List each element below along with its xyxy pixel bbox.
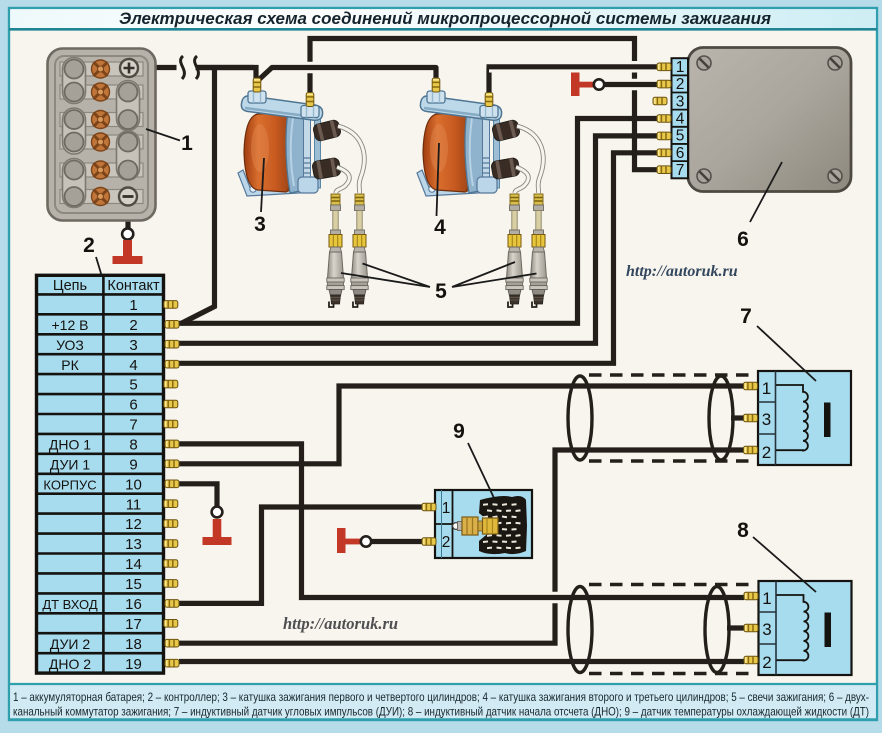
svg-text:9: 9: [453, 420, 465, 443]
svg-text:13: 13: [125, 536, 142, 553]
svg-text:Электрическая схема соединений: Электрическая схема соединений микропроц…: [119, 10, 771, 28]
svg-text:5: 5: [435, 280, 447, 303]
svg-text:РК: РК: [61, 357, 79, 373]
svg-text:11: 11: [126, 496, 142, 513]
svg-text:7: 7: [740, 305, 752, 328]
svg-text:Цепь: Цепь: [53, 278, 87, 294]
svg-text:ДУИ 2: ДУИ 2: [50, 636, 90, 652]
svg-text:2: 2: [442, 534, 451, 551]
svg-text:2: 2: [129, 317, 137, 334]
svg-text:6: 6: [129, 397, 137, 414]
svg-text:3: 3: [254, 213, 266, 236]
svg-text:10: 10: [125, 476, 142, 493]
svg-text:19: 19: [125, 656, 142, 673]
svg-text:Контакт: Контакт: [107, 278, 160, 294]
svg-text:ДНО 2: ДНО 2: [49, 656, 91, 672]
svg-text:4: 4: [676, 111, 685, 128]
svg-text:18: 18: [125, 636, 142, 653]
svg-text:4: 4: [129, 357, 137, 374]
svg-text:1: 1: [442, 500, 451, 517]
svg-text:+12 В: +12 В: [52, 317, 89, 333]
svg-text:16: 16: [125, 596, 142, 613]
svg-text:2: 2: [83, 234, 95, 257]
svg-text:17: 17: [125, 616, 142, 633]
svg-text:6: 6: [737, 228, 749, 251]
svg-text:7: 7: [129, 417, 137, 434]
svg-text:12: 12: [125, 516, 142, 533]
svg-text:3: 3: [676, 93, 685, 110]
svg-text:http://autoruk.ru: http://autoruk.ru: [626, 263, 738, 280]
svg-text:4: 4: [434, 216, 446, 239]
svg-text:15: 15: [125, 576, 142, 593]
svg-text:5: 5: [129, 377, 137, 394]
svg-text:8: 8: [737, 519, 749, 542]
svg-text:9: 9: [129, 456, 137, 473]
svg-text:2: 2: [676, 76, 685, 93]
svg-text:КОРПУС: КОРПУС: [43, 477, 96, 492]
svg-text:1 – аккумуляторная батарея; 2: 1 – аккумуляторная батарея; 2 – контролл…: [13, 690, 869, 704]
svg-text:ДТ ВХОД: ДТ ВХОД: [42, 597, 98, 612]
svg-text:6: 6: [676, 145, 685, 162]
svg-text:3: 3: [129, 337, 137, 354]
svg-text:8: 8: [129, 437, 137, 454]
svg-text:1: 1: [181, 132, 193, 155]
svg-text:14: 14: [125, 556, 142, 573]
svg-text:5: 5: [676, 128, 685, 145]
svg-text:ДНО 1: ДНО 1: [49, 437, 91, 453]
svg-text:ДУИ 1: ДУИ 1: [50, 456, 90, 472]
svg-text:http://autoruk.ru: http://autoruk.ru: [283, 614, 398, 633]
svg-text:УОЗ: УОЗ: [56, 337, 84, 353]
svg-text:1: 1: [676, 59, 685, 76]
svg-text:канальный коммутатор зажигания: канальный коммутатор зажигания; 7 – инду…: [13, 705, 869, 719]
svg-text:7: 7: [676, 162, 685, 179]
svg-text:1: 1: [129, 297, 137, 314]
